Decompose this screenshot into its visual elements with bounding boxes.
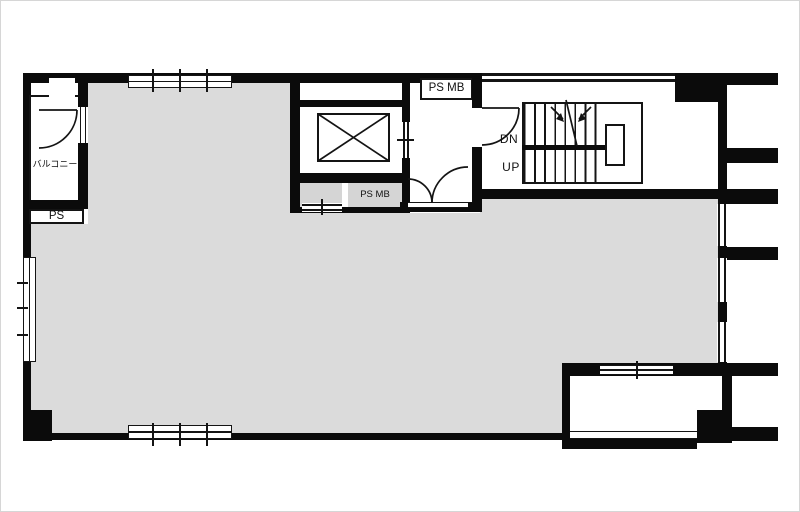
stairs-down-label: DN bbox=[495, 133, 523, 145]
hall-door-left-arc bbox=[408, 179, 432, 203]
stairs-up-label: UP bbox=[497, 161, 525, 173]
floor-plan: バルコニー PS PS MB PS MB DN UP bbox=[0, 0, 800, 512]
plan-linework bbox=[0, 0, 800, 512]
ps-mb-shaft-label: PS MB bbox=[348, 190, 402, 200]
balcony-label: バルコニー bbox=[29, 160, 81, 169]
elevator-x-icon bbox=[318, 114, 389, 161]
ps-label: PS bbox=[29, 211, 84, 223]
ps-mb-hall-label: PS MB bbox=[420, 83, 473, 95]
stair-break-line bbox=[566, 100, 577, 146]
hall-door-right-arc bbox=[432, 167, 468, 203]
balcony-door-arc bbox=[39, 110, 77, 148]
